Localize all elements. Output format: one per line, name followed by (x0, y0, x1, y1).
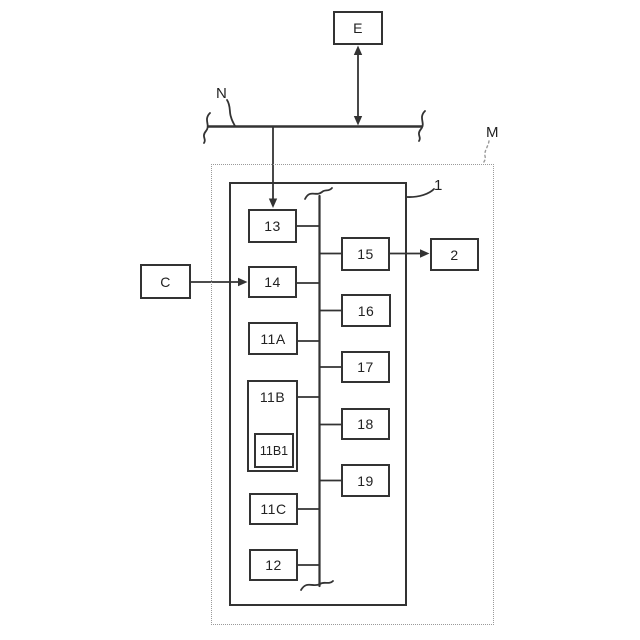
box-15-label: 15 (357, 246, 374, 262)
box-14-label: 14 (264, 274, 281, 290)
box-13-label: 13 (264, 218, 281, 234)
box-11a: 11A (248, 322, 298, 355)
break-mark-left (204, 113, 210, 143)
box-12: 12 (249, 549, 298, 581)
box-c-label: C (160, 274, 171, 290)
box-18-label: 18 (357, 416, 374, 432)
box-11b-label: 11B (260, 389, 285, 405)
box-19-label: 19 (357, 473, 374, 489)
box-12-label: 12 (265, 557, 282, 573)
figure-canvas: E C 2 13 14 11A 11B 11B1 11C 12 15 16 17… (0, 0, 640, 640)
box-2: 2 (430, 238, 479, 271)
box-e-label: E (353, 20, 363, 36)
box-19: 19 (341, 464, 390, 497)
box-e: E (333, 11, 383, 45)
box-11b1: 11B1 (254, 433, 294, 468)
label-m: M (486, 124, 499, 141)
box-11c-label: 11C (260, 501, 286, 517)
box-c: C (140, 264, 191, 299)
arrowhead-down-n (354, 116, 362, 126)
box-17: 17 (341, 351, 390, 383)
leader-n (227, 100, 235, 126)
box-11c: 11C (249, 493, 298, 525)
box-18: 18 (341, 408, 390, 440)
leader-m (483, 141, 489, 164)
box-11a-label: 11A (260, 331, 285, 347)
box-13: 13 (248, 209, 297, 243)
box-14: 14 (248, 266, 297, 298)
box-15: 15 (341, 237, 390, 271)
box-17-label: 17 (357, 359, 374, 375)
box-11b1-label: 11B1 (260, 444, 288, 458)
box-16-label: 16 (358, 303, 375, 319)
arrowhead-up-e (354, 46, 362, 56)
label-n: N (216, 85, 227, 102)
label-1: 1 (434, 177, 443, 194)
box-16: 16 (341, 294, 391, 327)
box-2-label: 2 (450, 247, 458, 263)
